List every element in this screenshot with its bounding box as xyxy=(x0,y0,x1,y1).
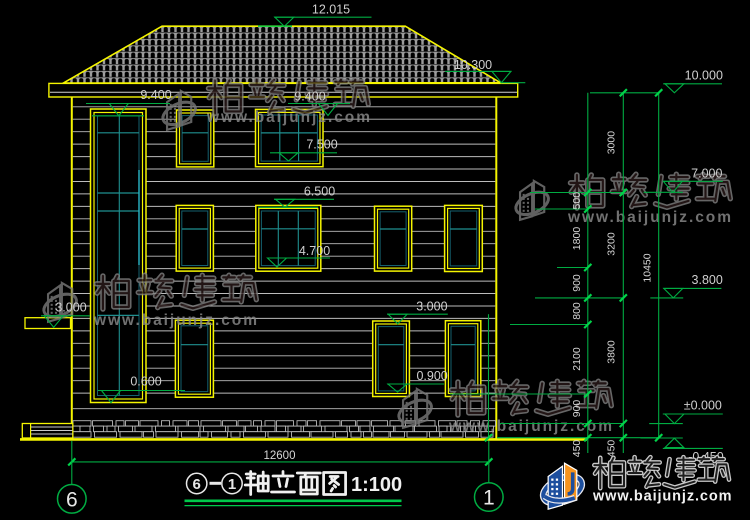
svg-text:6: 6 xyxy=(66,489,78,512)
svg-text:3.000: 3.000 xyxy=(416,300,447,314)
svg-text:7.500: 7.500 xyxy=(306,138,337,152)
svg-text:6: 6 xyxy=(193,476,201,493)
svg-text:3000: 3000 xyxy=(606,131,618,155)
svg-text:1: 1 xyxy=(228,476,236,493)
svg-text:800: 800 xyxy=(571,302,583,320)
svg-text:9.400: 9.400 xyxy=(294,90,325,104)
svg-text:500: 500 xyxy=(571,192,583,210)
svg-text:0.900: 0.900 xyxy=(416,369,447,383)
svg-text:12600: 12600 xyxy=(264,450,296,462)
svg-text:3.800: 3.800 xyxy=(692,273,723,287)
svg-text:7.000: 7.000 xyxy=(691,167,722,181)
svg-text:3.000: 3.000 xyxy=(55,301,86,315)
svg-text:900: 900 xyxy=(571,274,583,292)
svg-text:0.600: 0.600 xyxy=(130,375,161,389)
svg-text:2100: 2100 xyxy=(571,347,583,371)
svg-text:3800: 3800 xyxy=(606,340,618,364)
svg-text:900: 900 xyxy=(571,400,583,418)
svg-text:3200: 3200 xyxy=(606,232,618,256)
svg-text:1: 1 xyxy=(483,487,495,510)
svg-text:6.500: 6.500 xyxy=(304,185,335,199)
svg-text:450: 450 xyxy=(571,440,583,458)
svg-text:www.baijunjz.com: www.baijunjz.com xyxy=(567,209,732,226)
svg-text:www.baijunjz.com: www.baijunjz.com xyxy=(206,109,371,126)
svg-text:4.700: 4.700 xyxy=(299,244,330,258)
svg-text:10450: 10450 xyxy=(642,253,654,282)
svg-text:±0.000: ±0.000 xyxy=(684,399,722,413)
svg-text:450: 450 xyxy=(606,440,618,458)
svg-text:1800: 1800 xyxy=(571,227,583,251)
svg-text:12.015: 12.015 xyxy=(312,3,350,17)
svg-text:www.baijunjz.com: www.baijunjz.com xyxy=(93,312,258,329)
svg-text:9.400: 9.400 xyxy=(140,88,171,102)
svg-text:1:100: 1:100 xyxy=(351,474,402,496)
svg-text:www.baijunjz.com: www.baijunjz.com xyxy=(592,489,732,505)
svg-text:10.300: 10.300 xyxy=(454,58,492,72)
svg-text:10.000: 10.000 xyxy=(685,69,723,83)
